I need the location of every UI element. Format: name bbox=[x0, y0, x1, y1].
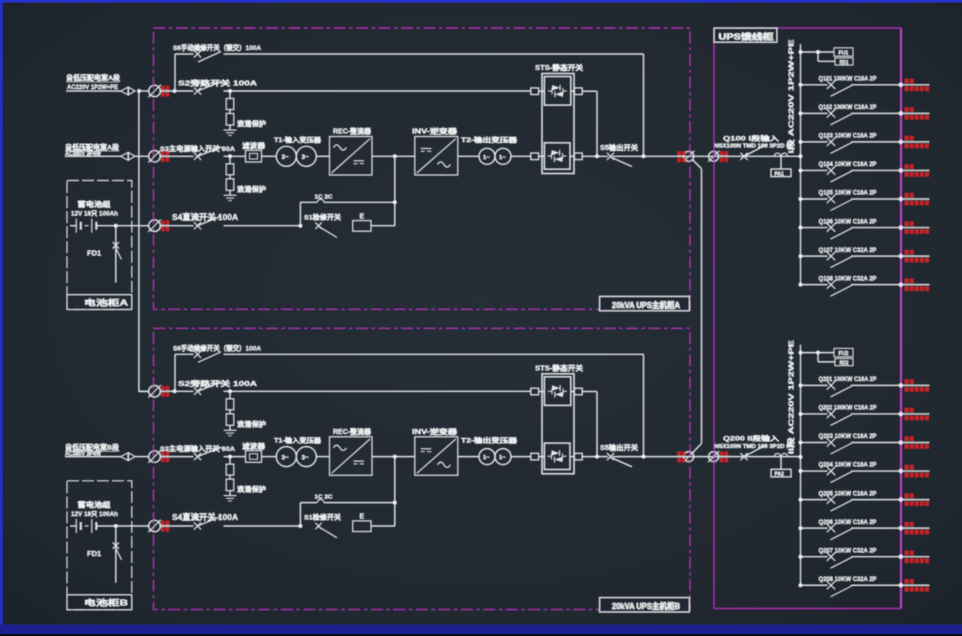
svg-text:20kVA UPS主机柜A: 20kVA UPS主机柜A bbox=[612, 300, 680, 310]
svg-text:1C 2C: 1C 2C bbox=[315, 194, 333, 200]
svg-text:S3主电源输入开关 60A: S3主电源输入开关 60A bbox=[160, 144, 235, 153]
svg-text:Q203 10KW C16A 2P: Q203 10KW C16A 2P bbox=[819, 433, 877, 440]
svg-text:T2-输出变压器: T2-输出变压器 bbox=[461, 135, 518, 144]
svg-text:Q205 10KW C16A 2P: Q205 10KW C16A 2P bbox=[819, 490, 877, 497]
svg-text:12V 18只 100Ah: 12V 18只 100Ah bbox=[71, 210, 118, 218]
svg-text:T2-输出变压器: T2-输出变压器 bbox=[461, 435, 518, 444]
svg-text:UPS馈线柜: UPS馈线柜 bbox=[719, 31, 774, 41]
svg-text:NSX100N TMD 100 3P2D F: NSX100N TMD 100 3P2D F bbox=[714, 144, 790, 150]
svg-text:自低压配电室A段: 自低压配电室A段 bbox=[66, 73, 120, 82]
svg-text:STS-静态开关: STS-静态开关 bbox=[535, 63, 583, 72]
svg-text:电池柜B: 电池柜B bbox=[84, 598, 129, 608]
svg-text:S1检修开关: S1检修开关 bbox=[304, 513, 341, 522]
svg-text:Q107 10KW C32A 2P: Q107 10KW C32A 2P bbox=[819, 247, 877, 254]
svg-text:S3主电源输入开关 60A: S3主电源输入开关 60A bbox=[160, 444, 235, 453]
svg-text:蓄电池组: 蓄电池组 bbox=[78, 500, 111, 509]
svg-text:3~: 3~ bbox=[282, 154, 289, 161]
svg-text:REC-整流器: REC-整流器 bbox=[333, 427, 372, 436]
svg-text:Q206 10KW C16A 2P: Q206 10KW C16A 2P bbox=[819, 519, 877, 526]
svg-text:PA1: PA1 bbox=[775, 171, 785, 177]
svg-text:浪涌保护: 浪涌保护 bbox=[237, 184, 266, 193]
svg-text:滤波器: 滤波器 bbox=[242, 441, 266, 450]
svg-text:滤波器: 滤波器 bbox=[242, 141, 266, 150]
svg-text:1C 2C: 1C 2C bbox=[315, 495, 333, 501]
svg-text:S5输出开关: S5输出开关 bbox=[600, 143, 638, 152]
svg-text:3~: 3~ bbox=[302, 454, 309, 461]
svg-text:NSX100N TMD 100 3P2D F: NSX100N TMD 100 3P2D F bbox=[714, 444, 790, 450]
svg-text:1~: 1~ bbox=[483, 155, 490, 161]
svg-text:T1-输入变压器: T1-输入变压器 bbox=[274, 435, 322, 444]
svg-text:RD1: RD1 bbox=[840, 60, 849, 66]
svg-text:Q202 100KW C16A 2P: Q202 100KW C16A 2P bbox=[819, 405, 877, 412]
svg-text:3~: 3~ bbox=[282, 454, 289, 461]
svg-text:FU1: FU1 bbox=[839, 51, 849, 57]
svg-text:S5输出开关: S5输出开关 bbox=[600, 443, 638, 452]
svg-text:Q207 10KW C32A 2P: Q207 10KW C32A 2P bbox=[819, 547, 877, 554]
svg-text:Q108 10KW C32A 2P: Q108 10KW C32A 2P bbox=[819, 275, 877, 282]
svg-text:PA2: PA2 bbox=[775, 472, 785, 478]
svg-text:INV-逆变器: INV-逆变器 bbox=[412, 127, 458, 136]
svg-text:Q106 10KW C16A 2P: Q106 10KW C16A 2P bbox=[819, 218, 877, 225]
svg-text:I段 AC220V 1P2W+PE: I段 AC220V 1P2W+PE bbox=[787, 39, 796, 153]
svg-text:Q100 I段输入: Q100 I段输入 bbox=[723, 133, 780, 142]
svg-text:S2旁路开关 100A: S2旁路开关 100A bbox=[178, 79, 257, 88]
svg-text:S1检修开关: S1检修开关 bbox=[304, 212, 341, 221]
svg-text:蓄电池组: 蓄电池组 bbox=[78, 200, 111, 209]
svg-text:Q105 10KW C16A 2P: Q105 10KW C16A 2P bbox=[819, 190, 877, 197]
svg-text:浪涌保护: 浪涌保护 bbox=[237, 485, 266, 494]
svg-text:STS-静态开关: STS-静态开关 bbox=[535, 363, 583, 372]
svg-text:S2旁路开关 100A: S2旁路开关 100A bbox=[178, 379, 257, 388]
svg-text:E: E bbox=[360, 213, 365, 220]
svg-text:S6手动维修开关（银交）100A: S6手动维修开关（银交）100A bbox=[173, 343, 261, 352]
svg-text:AC220V 1P2W+PE: AC220V 1P2W+PE bbox=[67, 84, 118, 91]
svg-text:Q204 10KW C16A 2P: Q204 10KW C16A 2P bbox=[819, 462, 877, 469]
svg-text:REC-整流器: REC-整流器 bbox=[333, 127, 372, 136]
svg-text:II段 AC220V 1P2W+PE: II段 AC220V 1P2W+PE bbox=[787, 340, 796, 454]
svg-text:Q208 10KW C32A 2P: Q208 10KW C32A 2P bbox=[819, 576, 877, 583]
svg-text:FD1: FD1 bbox=[87, 549, 101, 558]
svg-text:自低压配电室B段: 自低压配电室B段 bbox=[65, 443, 119, 452]
svg-text:Q101 100KW C16A 2P: Q101 100KW C16A 2P bbox=[819, 76, 877, 83]
svg-text:RD2: RD2 bbox=[840, 360, 849, 366]
svg-text:T1-输入变压器: T1-输入变压器 bbox=[274, 135, 322, 144]
svg-text:1~: 1~ bbox=[499, 455, 506, 461]
svg-text:E: E bbox=[360, 514, 365, 521]
svg-text:3~: 3~ bbox=[302, 154, 309, 161]
svg-text:S4直流开关 100A: S4直流开关 100A bbox=[172, 512, 238, 522]
svg-text:12V 18只 100Ah: 12V 18只 100Ah bbox=[71, 510, 118, 518]
svg-text:Q102 100KW C16A 2P: Q102 100KW C16A 2P bbox=[819, 104, 877, 111]
svg-text:FU2: FU2 bbox=[839, 351, 849, 357]
svg-text:Q104 10KW C16A 2P: Q104 10KW C16A 2P bbox=[819, 161, 877, 168]
svg-text:浪涌保护: 浪涌保护 bbox=[237, 419, 266, 428]
svg-text:Q200 II段输入: Q200 II段输入 bbox=[723, 434, 780, 443]
svg-text:电池柜A: 电池柜A bbox=[84, 297, 129, 307]
svg-text:Q103 10KW C16A 2P: Q103 10KW C16A 2P bbox=[819, 133, 877, 140]
svg-text:浪涌保护: 浪涌保护 bbox=[237, 119, 266, 128]
svg-text:Q201 100KW C16A 2P: Q201 100KW C16A 2P bbox=[819, 376, 877, 383]
svg-text:FD1: FD1 bbox=[87, 249, 101, 258]
svg-text:自低压配电室A段: 自低压配电室A段 bbox=[65, 142, 119, 151]
svg-text:S4直流开关 100A: S4直流开关 100A bbox=[172, 212, 238, 222]
svg-text:20kVA UPS主机柜B: 20kVA UPS主机柜B bbox=[612, 601, 680, 611]
svg-text:1~: 1~ bbox=[483, 455, 490, 461]
svg-text:S6手动维修开关（银交）100A: S6手动维修开关（银交）100A bbox=[173, 43, 261, 52]
svg-text:INV-逆变器: INV-逆变器 bbox=[412, 427, 458, 436]
svg-text:1~: 1~ bbox=[499, 155, 506, 161]
